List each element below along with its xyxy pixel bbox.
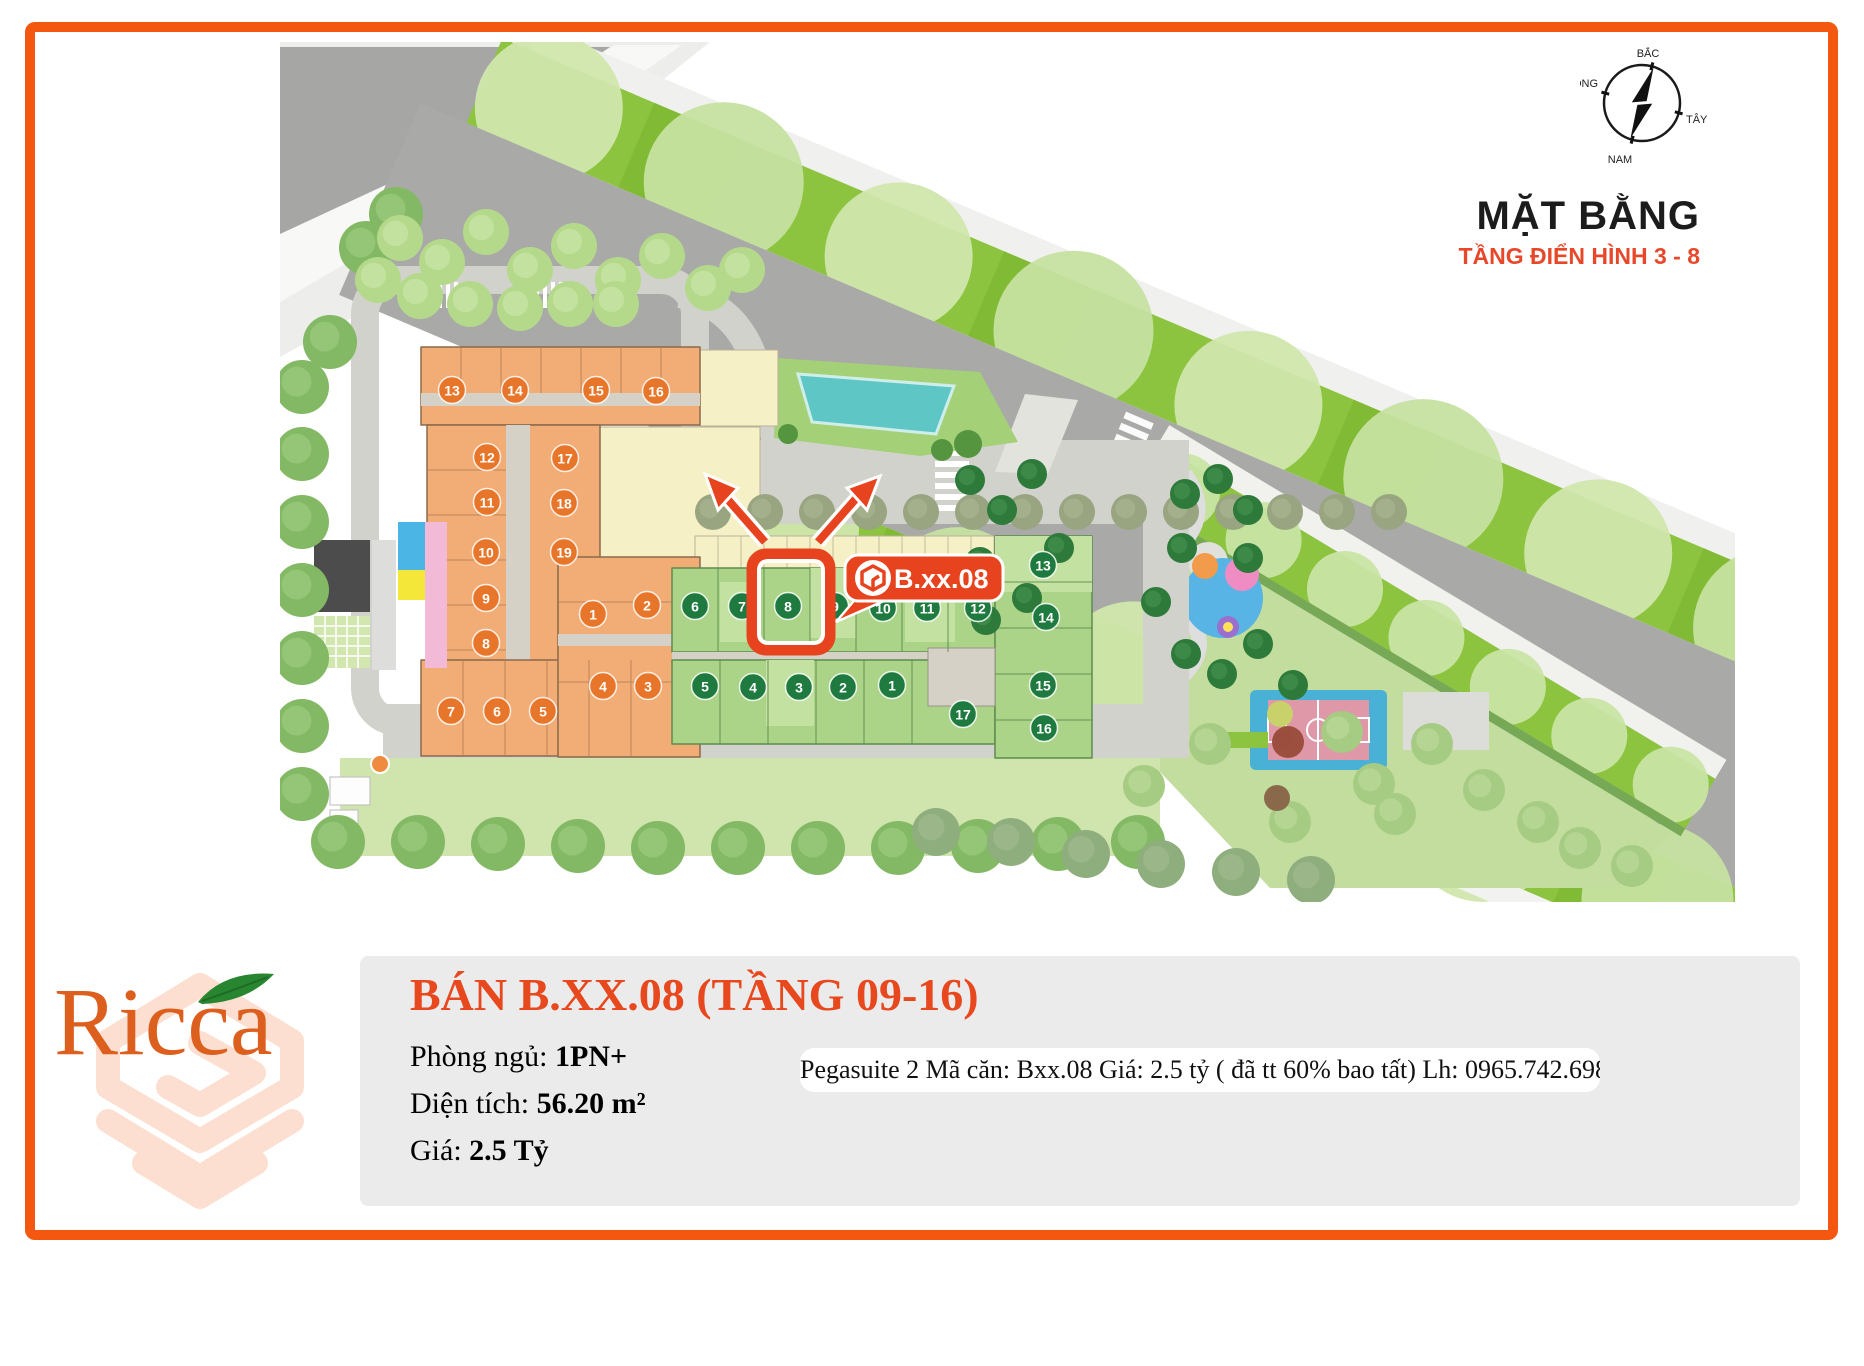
svg-text:3: 3 (795, 680, 803, 696)
map-subtitle: TẦNG ĐIỂN HÌNH 3 - 8 (1458, 243, 1700, 270)
listing-panel: BÁN B.XX.08 (TẦNG 09-16) Phòng ngủ: 1PN+… (360, 956, 1800, 1206)
amenity-strip (314, 522, 447, 670)
area-label: Diện tích: (410, 1087, 529, 1120)
svg-text:15: 15 (588, 383, 604, 399)
unit-marker: 17 (950, 701, 977, 728)
svg-text:2: 2 (643, 598, 651, 614)
compass-east-label: ĐÔNG (1580, 77, 1598, 90)
svg-text:3: 3 (644, 679, 652, 695)
svg-text:12: 12 (479, 450, 495, 466)
svg-text:6: 6 (493, 704, 501, 720)
unit-marker: 19 (551, 539, 578, 566)
price-label: Giá: (410, 1134, 462, 1167)
area-value: 56.20 m² (537, 1087, 646, 1120)
svg-text:16: 16 (1036, 721, 1052, 737)
unit-marker: 4 (740, 674, 767, 701)
svg-text:5: 5 (701, 679, 709, 695)
unit-marker: 17 (552, 445, 579, 472)
svg-text:11: 11 (920, 601, 935, 617)
unit-marker: 7 (438, 698, 465, 725)
callout-label: B.xx.08 (894, 564, 989, 594)
svg-text:15: 15 (1035, 678, 1051, 694)
svg-text:9: 9 (482, 591, 490, 607)
unit-marker: 1 (879, 672, 906, 699)
unit-marker: 16 (643, 378, 670, 405)
unit-marker: 15 (1030, 672, 1057, 699)
unit-marker: 2 (830, 674, 857, 701)
unit-marker: 8 (473, 630, 500, 657)
svg-text:13: 13 (444, 383, 460, 399)
compass: BẮC ĐÔNG TÂY NAM (1580, 45, 1715, 170)
unit-marker: 6 (484, 698, 511, 725)
svg-text:11: 11 (480, 495, 495, 511)
compass-west-label: TÂY (1686, 113, 1708, 126)
svg-text:1: 1 (888, 678, 896, 694)
svg-text:17: 17 (955, 707, 971, 723)
svg-text:6: 6 (691, 599, 699, 615)
svg-text:7: 7 (738, 599, 746, 615)
unit-marker: 11 (474, 489, 501, 516)
unit-marker: 13 (1030, 552, 1057, 579)
svg-text:8: 8 (784, 599, 792, 615)
compass-circle (1604, 65, 1680, 141)
note-input[interactable]: Pegasuite 2 Mã căn: Bxx.08 Giá: 2.5 tỷ (… (800, 1048, 1600, 1092)
unit-marker: 12 (474, 444, 501, 471)
svg-text:17: 17 (557, 451, 573, 467)
area-line: Diện tích: 56.20 m² (410, 1087, 646, 1121)
unit-marker: 16 (1031, 715, 1058, 742)
svg-text:16: 16 (648, 384, 664, 400)
unit-marker: 2 (634, 592, 661, 619)
unit-marker: 3 (786, 674, 813, 701)
svg-text:14: 14 (507, 383, 523, 399)
unit-marker: 14 (502, 377, 529, 404)
unit-marker: 8 (775, 593, 802, 620)
listing-title: BÁN B.XX.08 (TẦNG 09-16) (410, 968, 979, 1021)
bedrooms-line: Phòng ngủ: 1PN+ (410, 1040, 627, 1074)
bedrooms-label: Phòng ngủ: (410, 1040, 548, 1073)
unit-marker: 13 (439, 377, 466, 404)
unit-marker: 10 (473, 539, 500, 566)
svg-text:5: 5 (539, 704, 547, 720)
map-title: MẶT BẰNG (1458, 194, 1700, 239)
unit-marker: 1 (580, 601, 607, 628)
unit-marker: 14 (1033, 604, 1060, 631)
compass-south-label: NAM (1608, 154, 1632, 166)
ricca-logo: Ricca (48, 952, 358, 1232)
price-value: 2.5 Tỷ (469, 1134, 548, 1167)
leaf-icon (194, 968, 278, 1010)
site-plan: 12345678910111213141516171819 1234567891… (280, 42, 1735, 902)
svg-text:10: 10 (478, 545, 494, 561)
kiosk (330, 777, 370, 805)
svg-text:12: 12 (970, 601, 986, 617)
unit-marker: 5 (692, 673, 719, 700)
unit-marker: 15 (583, 377, 610, 404)
svg-text:13: 13 (1035, 558, 1051, 574)
roundabout (371, 755, 389, 773)
basketball-court (1250, 690, 1387, 770)
svg-text:19: 19 (556, 545, 572, 561)
unit-marker: 4 (590, 673, 617, 700)
svg-text:7: 7 (447, 704, 455, 720)
svg-text:2: 2 (839, 680, 847, 696)
price-line: Giá: 2.5 Tỷ (410, 1134, 549, 1168)
svg-text:1: 1 (589, 607, 597, 623)
unit-marker: 18 (551, 490, 578, 517)
unit-marker: 5 (530, 698, 557, 725)
unit-marker: 6 (682, 593, 709, 620)
svg-text:4: 4 (749, 680, 757, 696)
compass-north-label: BẮC (1637, 47, 1660, 60)
svg-text:8: 8 (482, 636, 490, 652)
unit-marker: 9 (473, 585, 500, 612)
svg-text:4: 4 (599, 679, 607, 695)
bedrooms-value: 1PN+ (555, 1040, 627, 1073)
svg-text:14: 14 (1038, 610, 1054, 626)
unit-marker: 3 (635, 673, 662, 700)
svg-text:18: 18 (556, 496, 572, 512)
